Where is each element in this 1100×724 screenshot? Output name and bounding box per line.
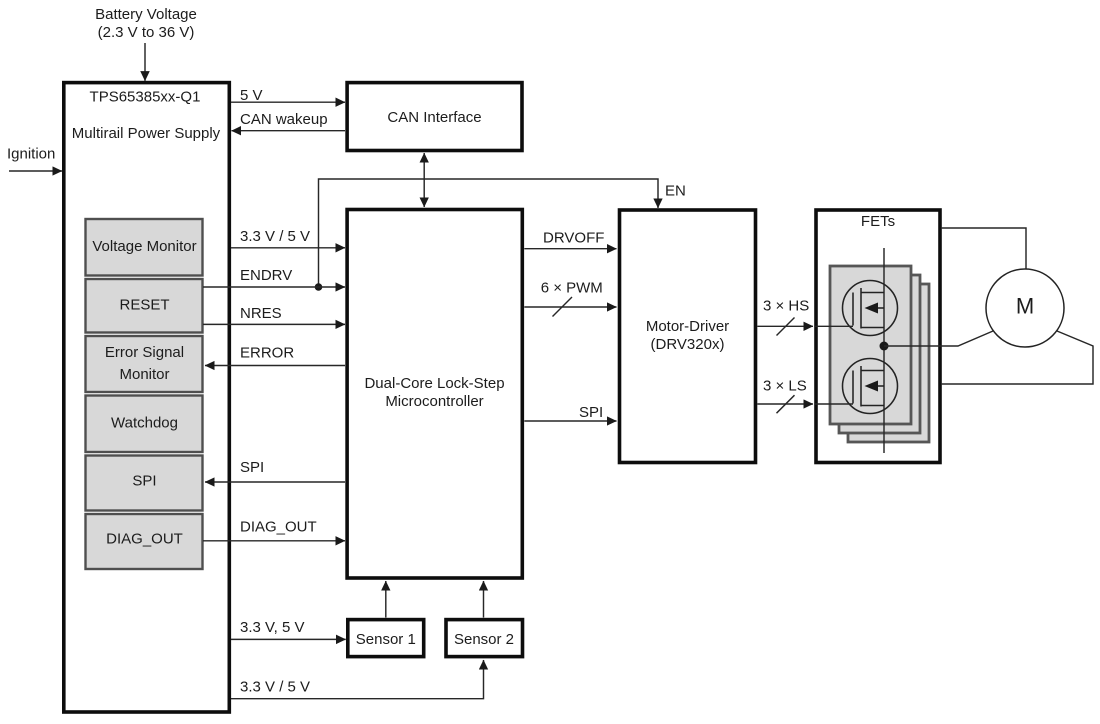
svg-text:FETs: FETs (861, 213, 895, 230)
svg-text:DIAG_OUT: DIAG_OUT (240, 519, 317, 536)
svg-text:ENDRV: ENDRV (240, 267, 292, 284)
svg-text:Dual-Core Lock-Step: Dual-Core Lock-Step (364, 375, 504, 392)
svg-text:3 × LS: 3 × LS (763, 378, 807, 395)
svg-text:SPI: SPI (579, 404, 603, 421)
svg-text:5 V: 5 V (240, 87, 263, 104)
svg-text:SPI: SPI (240, 459, 264, 476)
svg-text:Motor-Driver: Motor-Driver (646, 318, 729, 335)
svg-text:NRES: NRES (240, 305, 282, 322)
svg-text:TPS65385xx-Q1: TPS65385xx-Q1 (90, 89, 201, 106)
svg-text:3 × HS: 3 × HS (763, 298, 809, 315)
svg-text:ERROR: ERROR (240, 344, 294, 361)
svg-text:6 × PWM: 6 × PWM (541, 279, 603, 296)
svg-text:DIAG_OUT: DIAG_OUT (106, 531, 183, 548)
svg-text:3.3 V, 5 V: 3.3 V, 5 V (240, 619, 305, 636)
svg-text:CAN Interface: CAN Interface (387, 109, 481, 126)
svg-text:CAN wakeup: CAN wakeup (240, 111, 328, 128)
svg-text:3.3 V / 5 V: 3.3 V / 5 V (240, 679, 310, 696)
svg-text:RESET: RESET (119, 297, 169, 314)
svg-text:SPI: SPI (132, 473, 156, 490)
svg-text:Ignition: Ignition (7, 146, 55, 163)
svg-text:Error Signal: Error Signal (105, 344, 184, 361)
svg-text:Monitor: Monitor (119, 366, 169, 383)
svg-text:Sensor 1: Sensor 1 (356, 631, 416, 648)
svg-text:Sensor 2: Sensor 2 (454, 631, 514, 648)
svg-text:3.3 V / 5 V: 3.3 V / 5 V (240, 228, 310, 245)
svg-text:Watchdog: Watchdog (111, 415, 178, 432)
svg-text:Multirail Power Supply: Multirail Power Supply (72, 125, 221, 142)
svg-text:Microcontroller: Microcontroller (385, 393, 483, 410)
svg-text:M: M (1016, 294, 1034, 319)
svg-text:DRVOFF: DRVOFF (543, 229, 604, 246)
svg-text:EN: EN (665, 183, 686, 200)
svg-text:(2.3 V to 36 V): (2.3 V to 36 V) (98, 24, 195, 41)
svg-text:Voltage Monitor: Voltage Monitor (92, 238, 196, 255)
svg-text:(DRV320x): (DRV320x) (651, 336, 725, 353)
svg-text:Battery Voltage: Battery Voltage (95, 6, 197, 23)
